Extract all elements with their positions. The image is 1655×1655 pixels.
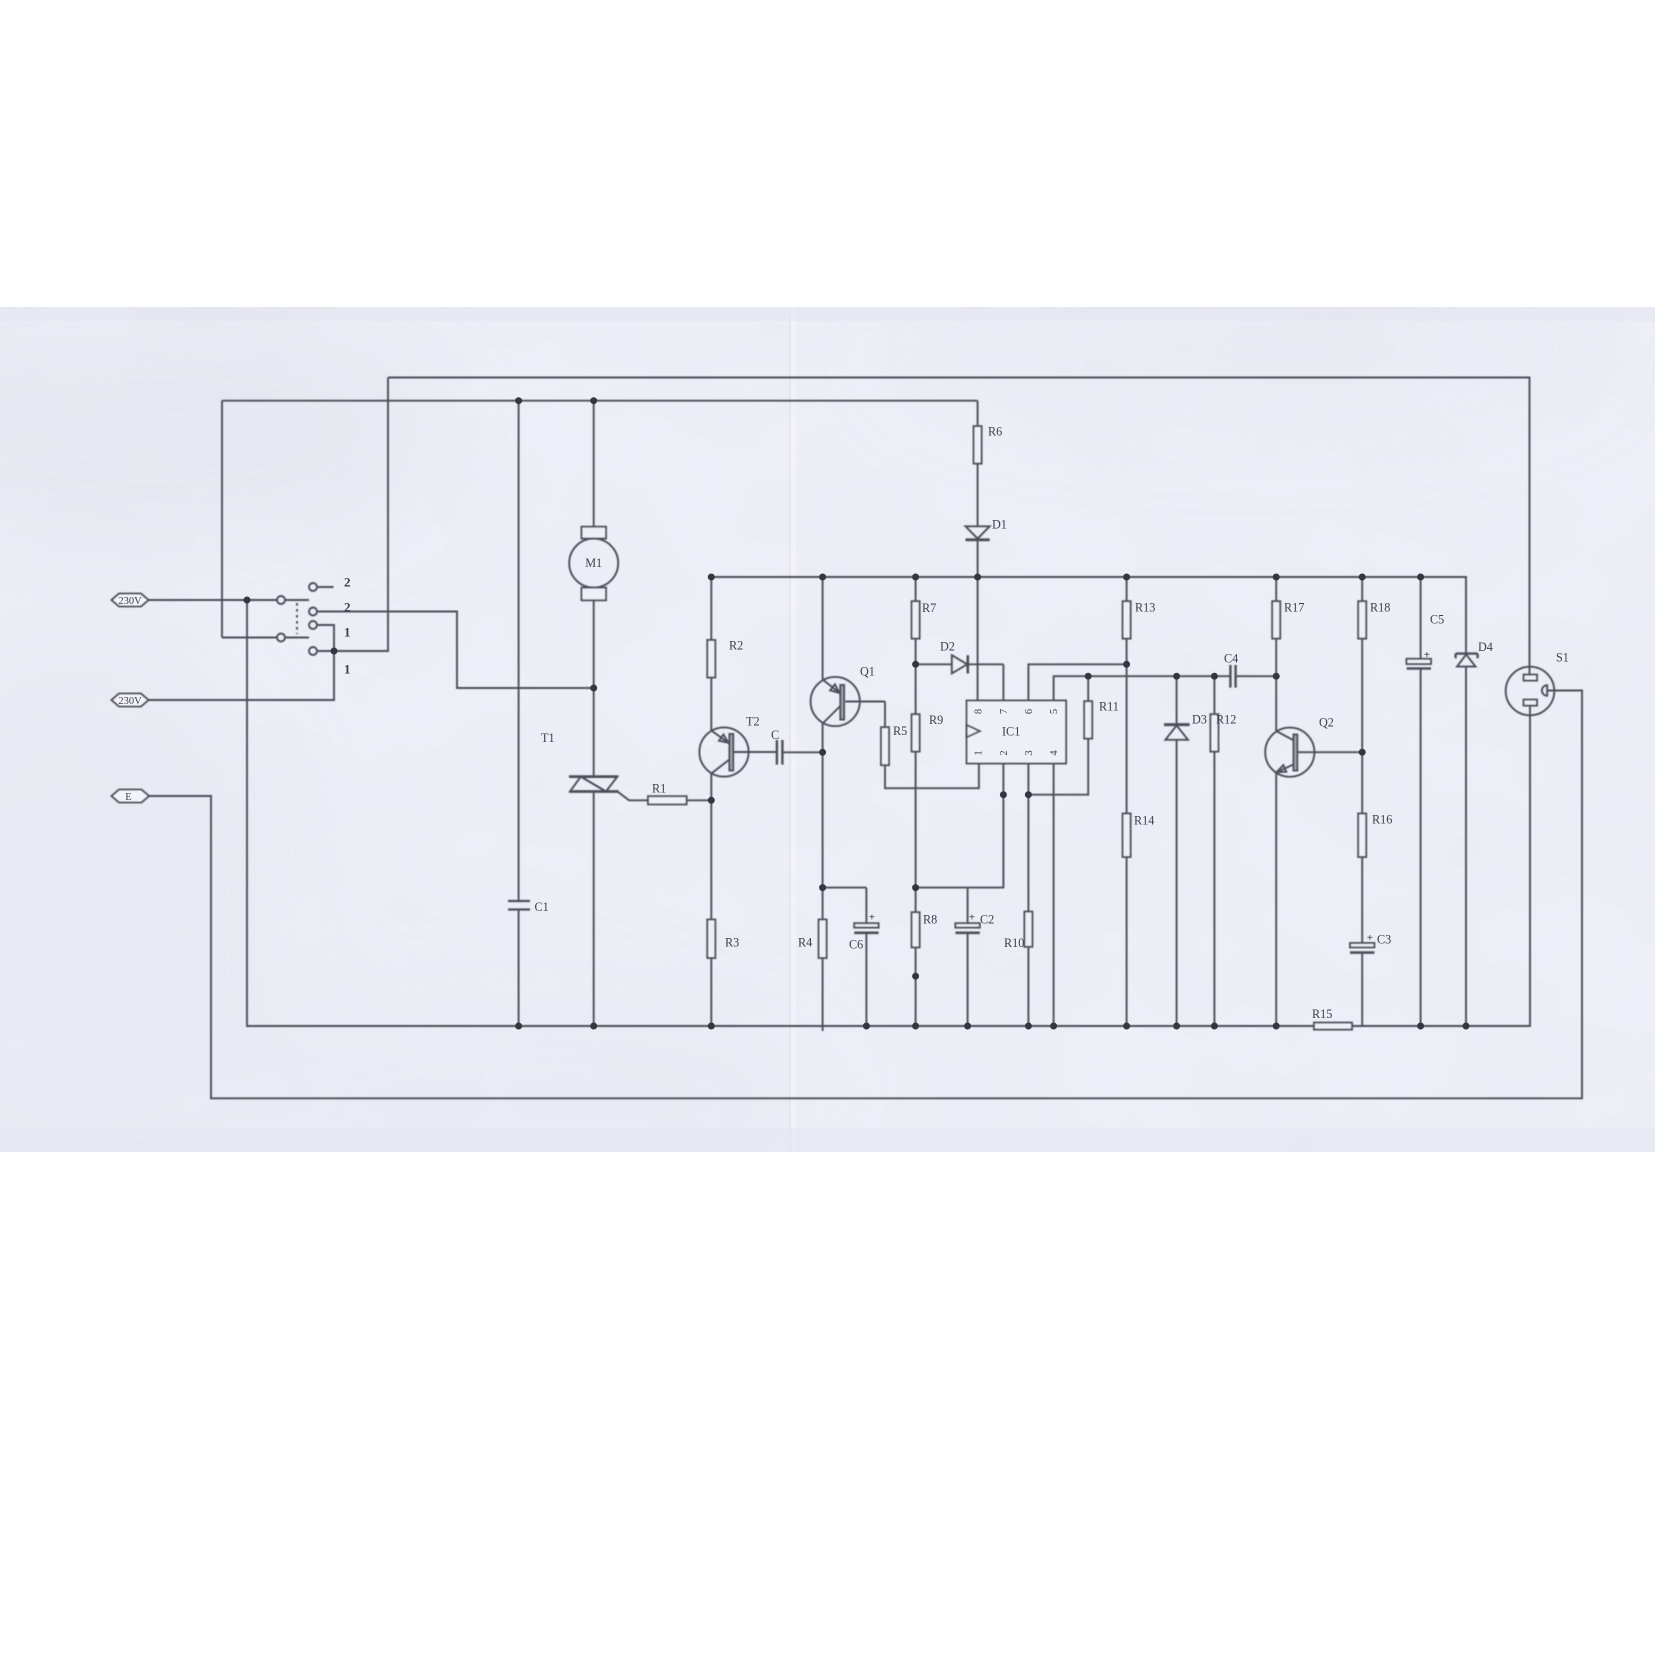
svg-text:4: 4 xyxy=(1049,750,1060,756)
svg-text:R11: R11 xyxy=(1099,700,1119,714)
svg-text:Q2: Q2 xyxy=(1319,716,1334,730)
svg-text:2: 2 xyxy=(999,750,1010,755)
svg-text:D4: D4 xyxy=(1478,640,1493,654)
svg-text:D1: D1 xyxy=(992,518,1007,532)
svg-text:M1: M1 xyxy=(585,556,602,570)
svg-text:7: 7 xyxy=(999,709,1010,714)
svg-text:6: 6 xyxy=(1024,709,1035,714)
svg-text:R17: R17 xyxy=(1284,601,1304,615)
svg-text:R10: R10 xyxy=(1004,936,1024,950)
svg-text:C5: C5 xyxy=(1430,613,1444,627)
svg-text:R1: R1 xyxy=(652,782,666,796)
svg-text:T2: T2 xyxy=(746,715,760,729)
svg-text:R4: R4 xyxy=(798,936,812,950)
svg-text:R7: R7 xyxy=(922,601,936,615)
svg-text:C3: C3 xyxy=(1377,933,1391,947)
svg-text:C1: C1 xyxy=(535,900,549,914)
svg-text:1: 1 xyxy=(344,625,351,640)
svg-text:5: 5 xyxy=(1049,709,1060,714)
svg-text:1: 1 xyxy=(344,662,351,677)
svg-text:8: 8 xyxy=(974,709,985,714)
svg-text:R18: R18 xyxy=(1370,601,1390,615)
svg-text:E: E xyxy=(125,792,131,803)
svg-text:+: + xyxy=(869,912,875,924)
svg-text:R13: R13 xyxy=(1135,601,1155,615)
svg-text:R15: R15 xyxy=(1312,1007,1332,1021)
svg-text:R3: R3 xyxy=(725,936,739,950)
svg-text:S1: S1 xyxy=(1556,651,1569,665)
svg-text:R2: R2 xyxy=(729,639,743,653)
svg-text:R14: R14 xyxy=(1134,814,1154,828)
svg-text:D2: D2 xyxy=(940,640,955,654)
svg-text:R5: R5 xyxy=(893,724,907,738)
svg-text:+: + xyxy=(969,912,975,924)
svg-text:R16: R16 xyxy=(1372,813,1392,827)
svg-text:IC1: IC1 xyxy=(1002,725,1020,739)
svg-text:2: 2 xyxy=(344,575,351,590)
svg-text:1: 1 xyxy=(974,750,985,755)
svg-text:2: 2 xyxy=(344,600,351,615)
svg-text:C2: C2 xyxy=(980,913,994,927)
svg-text:C4: C4 xyxy=(1224,652,1238,666)
svg-text:+: + xyxy=(1367,932,1373,944)
svg-text:Q1: Q1 xyxy=(860,665,875,679)
svg-text:3: 3 xyxy=(1024,750,1035,755)
svg-text:R6: R6 xyxy=(988,425,1002,439)
svg-text:230V: 230V xyxy=(118,696,142,707)
svg-text:R8: R8 xyxy=(923,913,937,927)
svg-text:+: + xyxy=(1424,649,1430,661)
svg-text:C: C xyxy=(771,728,779,742)
svg-text:230V: 230V xyxy=(118,596,142,607)
svg-text:T1: T1 xyxy=(541,731,555,745)
svg-text:D3: D3 xyxy=(1192,713,1207,727)
svg-text:C6: C6 xyxy=(849,938,863,952)
svg-text:R9: R9 xyxy=(929,713,943,727)
svg-text:R12: R12 xyxy=(1216,713,1236,727)
